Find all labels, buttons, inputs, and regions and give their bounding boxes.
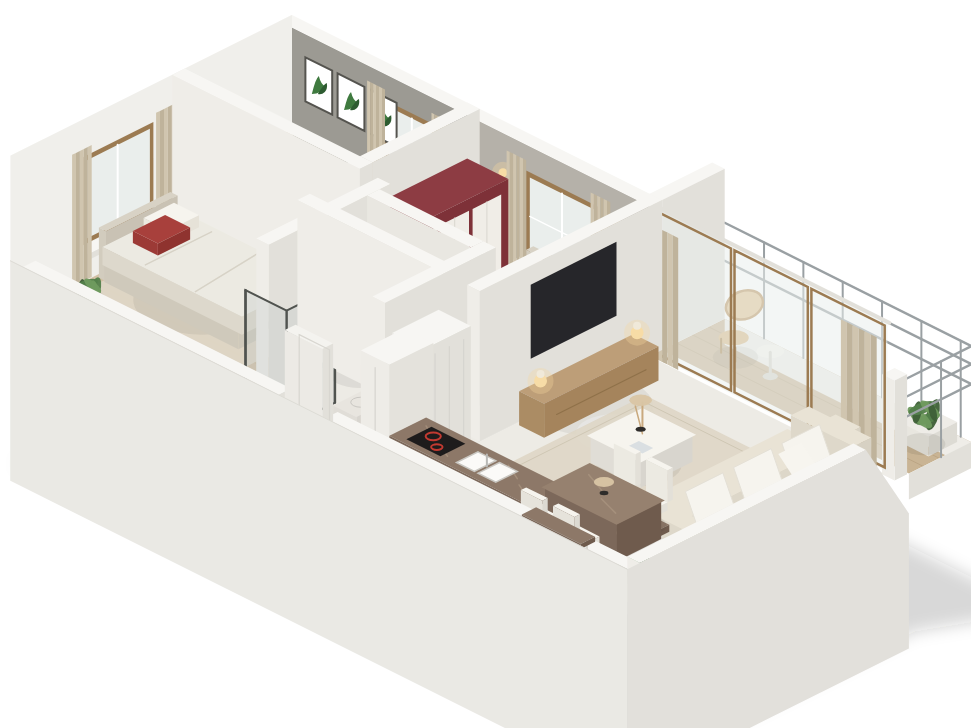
floorplan-3d-render [0,0,971,728]
floorplan-figure [0,0,971,728]
